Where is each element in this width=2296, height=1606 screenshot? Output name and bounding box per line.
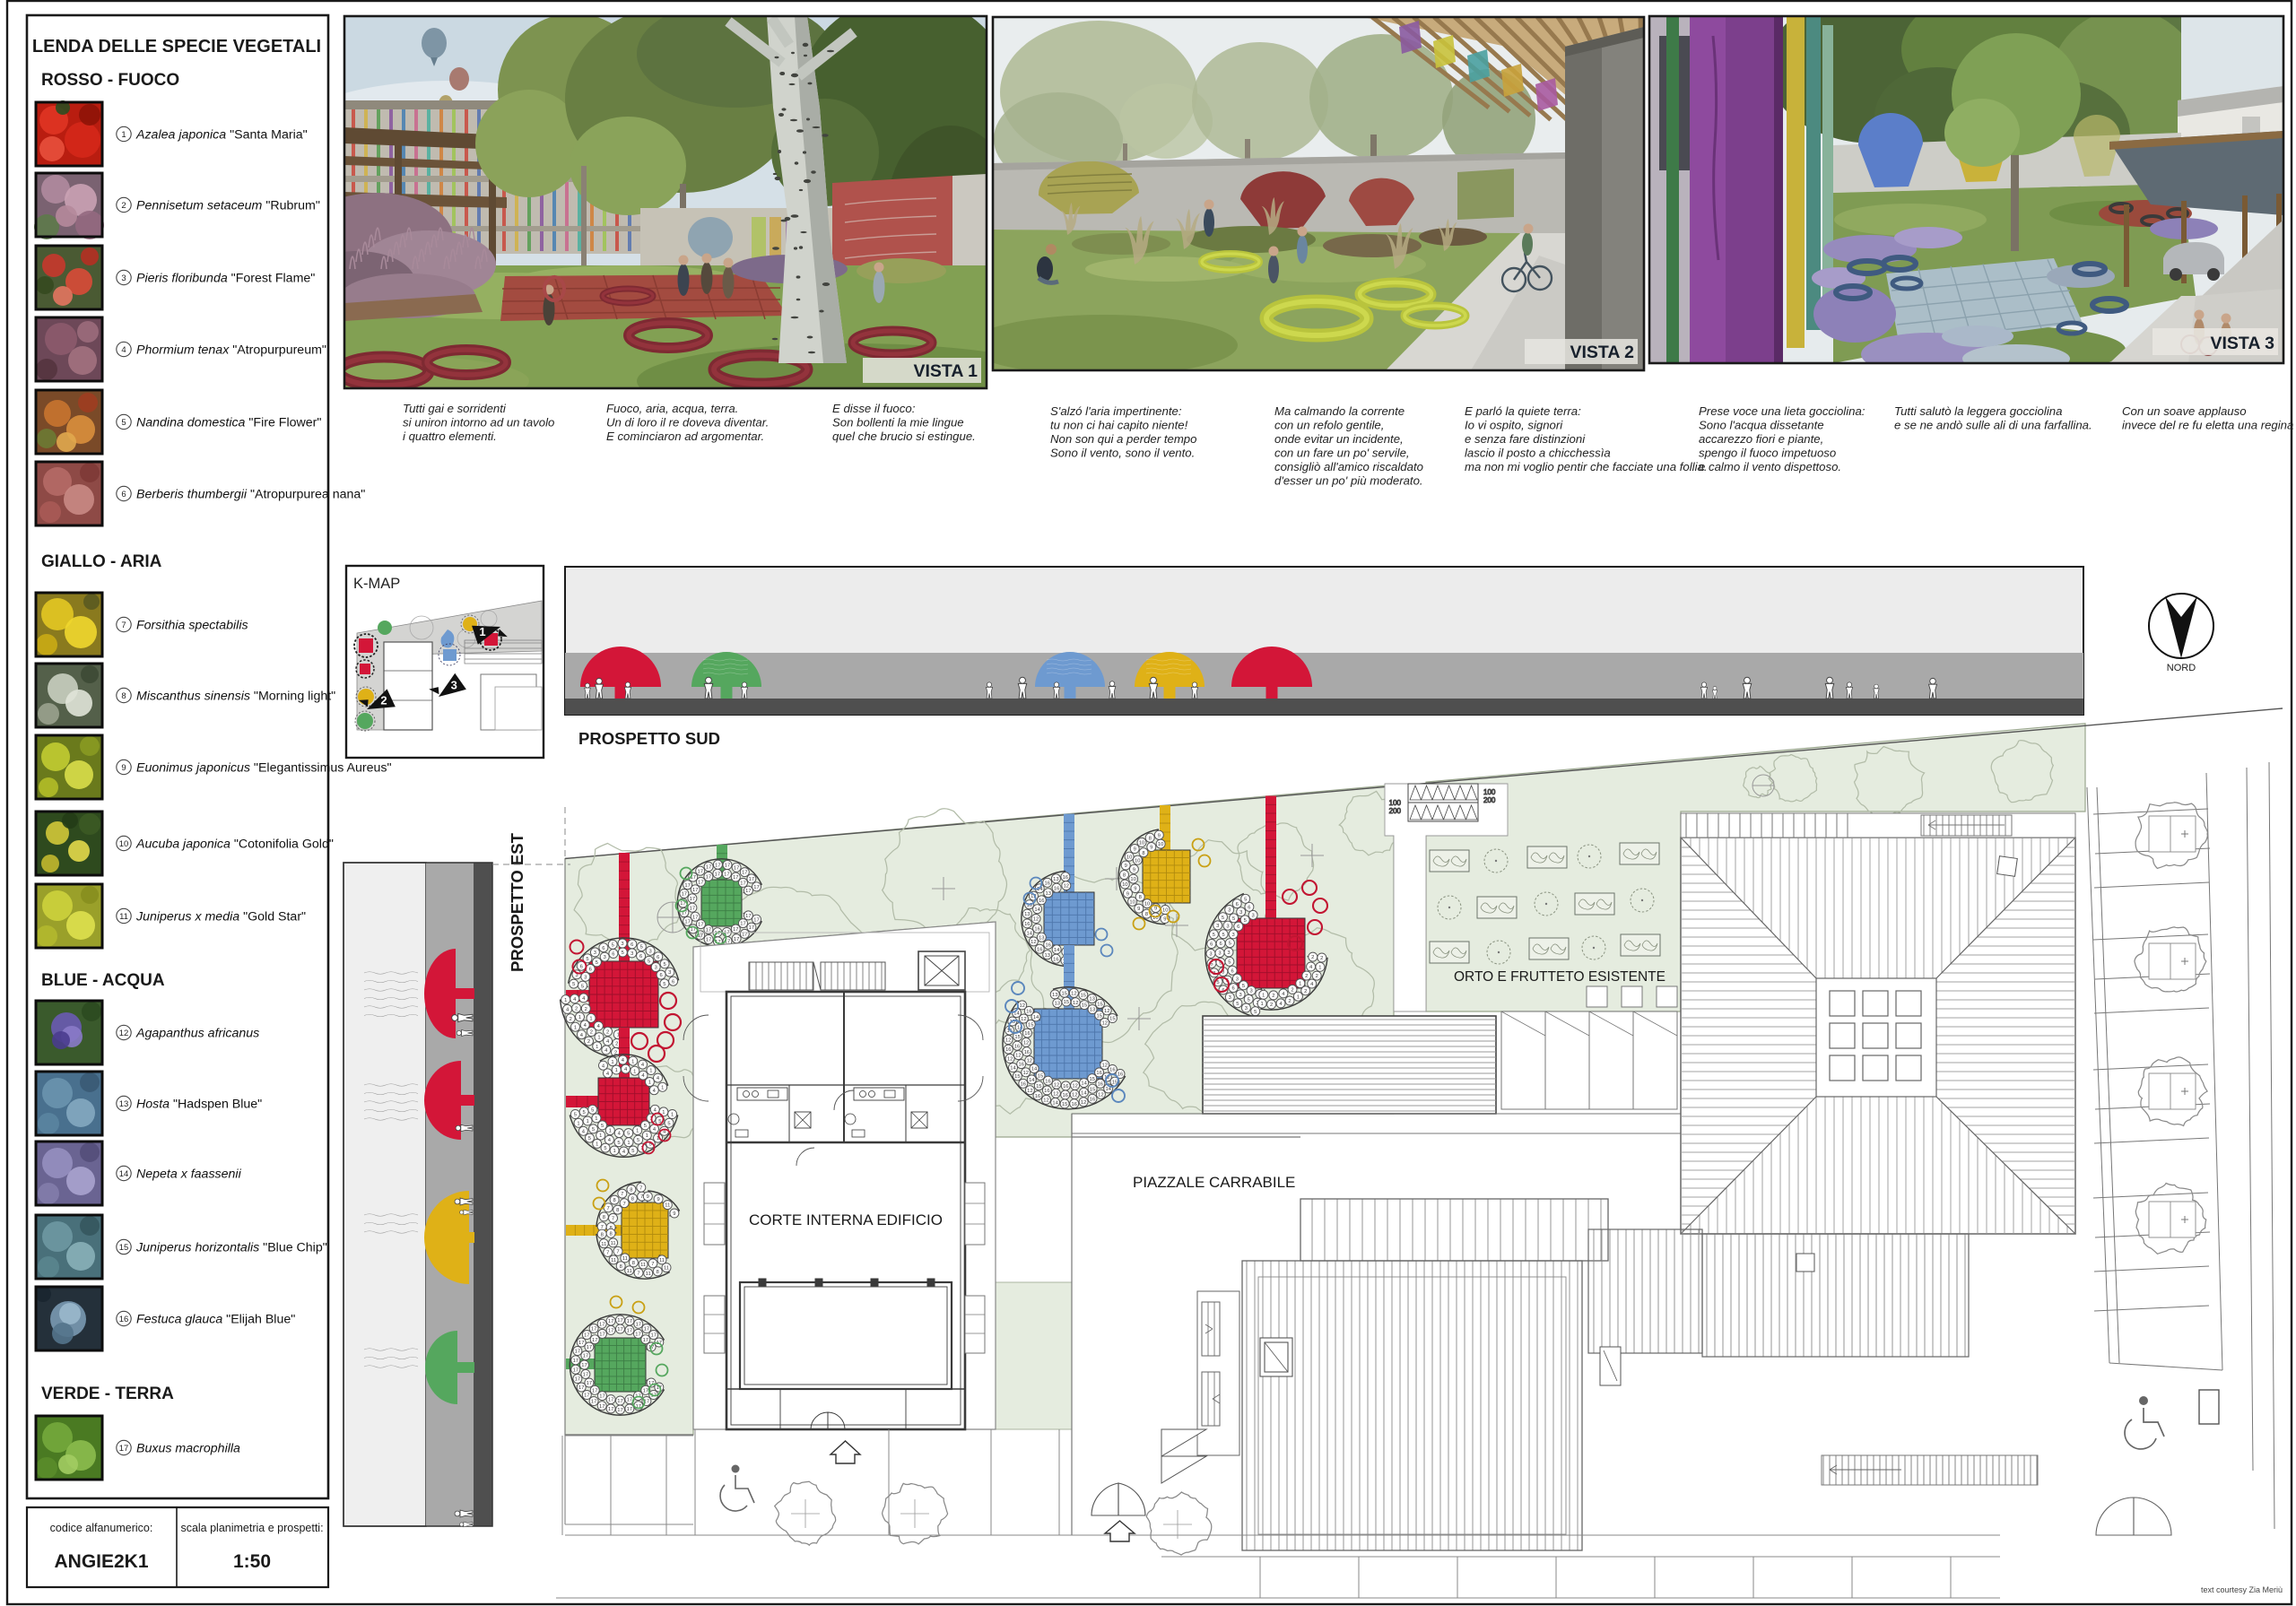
svg-text:5: 5 (1244, 897, 1247, 902)
svg-text:6: 6 (1219, 942, 1222, 947)
svg-text:16: 16 (1021, 1081, 1026, 1087)
svg-text:2: 2 (121, 201, 126, 211)
svg-text:3: 3 (655, 966, 657, 971)
svg-text:17: 17 (650, 1333, 656, 1339)
svg-text:6: 6 (1210, 942, 1213, 948)
svg-text:7: 7 (639, 1185, 642, 1191)
svg-text:200: 200 (1483, 796, 1496, 804)
svg-text:14: 14 (1081, 1081, 1087, 1087)
svg-text:3: 3 (604, 955, 606, 960)
svg-text:16: 16 (1118, 1072, 1123, 1078)
svg-text:6: 6 (1248, 905, 1250, 910)
svg-text:5: 5 (663, 962, 665, 968)
svg-text:16: 16 (1024, 1031, 1030, 1037)
svg-text:13: 13 (1044, 953, 1049, 959)
svg-text:1: 1 (1318, 965, 1321, 970)
svg-text:15: 15 (1064, 1000, 1069, 1005)
svg-text:5: 5 (581, 984, 584, 989)
svg-text:17: 17 (643, 1388, 648, 1393)
svg-text:7: 7 (621, 1192, 623, 1197)
svg-text:2: 2 (606, 1029, 609, 1035)
svg-text:17: 17 (587, 1345, 592, 1350)
svg-text:15: 15 (1090, 1087, 1095, 1092)
svg-text:Berberis thumbergii "Atropurpu: Berberis thumbergii "Atropurpurea nana" (136, 488, 365, 502)
svg-text:3: 3 (1231, 933, 1234, 938)
svg-text:1: 1 (649, 1069, 652, 1074)
svg-text:17: 17 (684, 919, 690, 925)
svg-text:3: 3 (1229, 995, 1231, 1001)
svg-text:Festuca glauca "Elijah Blue": Festuca glauca "Elijah Blue" (136, 1313, 295, 1327)
svg-text:Pennisetum setaceum "Rubrum": Pennisetum setaceum "Rubrum" (136, 199, 320, 213)
svg-text:1: 1 (597, 1036, 600, 1041)
svg-text:3: 3 (594, 951, 596, 956)
svg-text:11: 11 (665, 1203, 670, 1209)
svg-text:3: 3 (621, 942, 623, 947)
svg-text:17: 17 (592, 1388, 597, 1393)
svg-text:15: 15 (1082, 1003, 1087, 1009)
svg-text:17: 17 (692, 888, 698, 893)
svg-text:17: 17 (584, 1393, 589, 1399)
svg-text:17: 17 (617, 1327, 622, 1333)
svg-text:17: 17 (733, 927, 738, 933)
svg-text:17: 17 (706, 875, 711, 881)
svg-text:14: 14 (1031, 1067, 1038, 1072)
svg-text:Ma calmando la correntecon un: Ma calmando la correntecon un refolo gen… (1274, 404, 1423, 488)
svg-text:17: 17 (581, 1363, 587, 1368)
svg-text:8: 8 (620, 1264, 622, 1270)
svg-text:1: 1 (636, 1129, 639, 1134)
svg-text:5: 5 (572, 982, 575, 987)
svg-text:9: 9 (673, 1211, 675, 1217)
svg-text:5: 5 (1228, 959, 1231, 965)
svg-text:9: 9 (1134, 887, 1136, 892)
svg-text:2: 2 (1311, 955, 1314, 960)
svg-text:LENDA DELLE SPECIE VEGETALI: LENDA DELLE SPECIE VEGETALI (32, 37, 321, 56)
svg-text:1: 1 (609, 1129, 612, 1134)
svg-text:1: 1 (611, 1060, 613, 1065)
svg-text:8: 8 (616, 1208, 619, 1213)
svg-text:16: 16 (1039, 898, 1044, 904)
svg-text:1: 1 (613, 1149, 615, 1154)
svg-text:8: 8 (601, 1232, 604, 1237)
svg-text:2: 2 (590, 1030, 593, 1036)
svg-text:3: 3 (1245, 1006, 1248, 1011)
svg-text:17: 17 (617, 1408, 622, 1413)
svg-text:17: 17 (644, 1327, 649, 1333)
svg-text:9: 9 (1150, 846, 1152, 851)
svg-text:17: 17 (715, 863, 720, 868)
svg-text:17: 17 (583, 1373, 588, 1378)
svg-text:VISTA 1: VISTA 1 (913, 361, 978, 381)
svg-text:5: 5 (627, 1132, 630, 1137)
svg-text:17: 17 (627, 1398, 632, 1403)
svg-text:17: 17 (578, 1341, 584, 1346)
svg-text:ROSSO - FUOCO: ROSSO - FUOCO (41, 71, 179, 90)
svg-text:1: 1 (661, 1085, 664, 1090)
svg-text:8: 8 (1145, 912, 1148, 917)
svg-text:17: 17 (697, 869, 702, 874)
svg-text:5: 5 (640, 945, 643, 951)
svg-text:1: 1 (615, 1068, 618, 1073)
svg-text:1: 1 (595, 1116, 597, 1122)
svg-text:200: 200 (1389, 807, 1402, 815)
svg-text:10: 10 (1139, 841, 1144, 846)
svg-text:7: 7 (606, 1206, 609, 1211)
svg-text:12: 12 (1023, 1041, 1029, 1046)
svg-text:scala planimetria e prospetti:: scala planimetria e prospetti: (180, 1522, 323, 1534)
svg-text:VISTA 3: VISTA 3 (2210, 334, 2274, 353)
svg-text:16: 16 (1014, 1044, 1020, 1049)
svg-text:1: 1 (564, 998, 567, 1003)
svg-text:9: 9 (121, 763, 126, 773)
svg-text:12: 12 (1072, 1093, 1077, 1098)
svg-text:VERDE - TERRA: VERDE - TERRA (41, 1385, 174, 1403)
svg-text:ANGIE2K1: ANGIE2K1 (54, 1551, 148, 1572)
svg-text:13: 13 (1039, 935, 1044, 941)
svg-text:11: 11 (611, 1241, 616, 1246)
svg-text:11: 11 (622, 1256, 628, 1262)
svg-text:2: 2 (1288, 999, 1291, 1004)
svg-text:12: 12 (1072, 1084, 1077, 1089)
svg-text:17: 17 (617, 1318, 622, 1324)
svg-text:5: 5 (582, 1110, 585, 1116)
svg-text:5: 5 (667, 1121, 670, 1126)
svg-text:Nandina domestica "Fire Flower: Nandina domestica "Fire Flower" (136, 416, 321, 430)
svg-text:17: 17 (749, 877, 754, 882)
svg-text:Miscanthus sinensis "Morning l: Miscanthus sinensis "Morning light" (136, 690, 335, 704)
svg-text:3: 3 (631, 951, 633, 957)
svg-text:17: 17 (573, 1367, 578, 1373)
svg-text:15: 15 (119, 1243, 129, 1253)
svg-text:17: 17 (599, 1333, 604, 1338)
svg-text:14: 14 (1029, 1078, 1035, 1083)
svg-text:Juniperus x media "Gold Star": Juniperus x media "Gold Star" (135, 910, 306, 925)
svg-text:6: 6 (1237, 925, 1239, 930)
svg-text:3: 3 (1209, 952, 1212, 958)
svg-text:5: 5 (1216, 980, 1219, 985)
svg-text:12: 12 (1053, 1091, 1058, 1097)
svg-text:5: 5 (1232, 916, 1235, 922)
svg-text:17: 17 (617, 1399, 622, 1404)
svg-text:3: 3 (451, 678, 457, 691)
svg-text:17: 17 (643, 1338, 648, 1343)
svg-text:17: 17 (684, 883, 690, 889)
svg-text:9: 9 (1133, 867, 1135, 872)
svg-text:3: 3 (1236, 977, 1239, 982)
svg-text:15: 15 (1081, 994, 1086, 999)
svg-text:3: 3 (668, 970, 671, 976)
svg-text:6: 6 (659, 973, 662, 978)
svg-text:5: 5 (1254, 1010, 1257, 1015)
svg-text:5: 5 (591, 1107, 594, 1113)
svg-text:12: 12 (1098, 1092, 1103, 1098)
svg-text:9: 9 (1154, 907, 1157, 912)
svg-text:Forsithia spectabilis: Forsithia spectabilis (136, 619, 248, 633)
svg-text:16: 16 (1054, 886, 1059, 891)
svg-text:11: 11 (640, 1263, 646, 1268)
svg-text:16: 16 (1044, 881, 1049, 886)
svg-text:13: 13 (119, 1099, 129, 1109)
svg-text:3: 3 (1251, 914, 1254, 919)
svg-text:Hosta "Hadspen Blue": Hosta "Hadspen Blue" (136, 1098, 262, 1112)
svg-text:Agapanthus africanus: Agapanthus africanus (135, 1027, 259, 1041)
svg-text:11: 11 (119, 912, 128, 922)
svg-text:14: 14 (1026, 931, 1032, 936)
svg-text:11: 11 (646, 1272, 651, 1277)
svg-text:16: 16 (1026, 1010, 1031, 1015)
svg-text:Aucuba japonica "Cotonifolia G: Aucuba japonica "Cotonifolia Gold" (135, 838, 334, 852)
svg-text:15: 15 (1036, 1084, 1041, 1089)
svg-text:15: 15 (1109, 1017, 1115, 1022)
svg-text:17: 17 (608, 1407, 613, 1412)
svg-text:Buxus macrophilla: Buxus macrophilla (136, 1442, 240, 1456)
svg-text:ORTO E FRUTTETO ESISTENTE: ORTO E FRUTTETO ESISTENTE (1454, 969, 1665, 985)
svg-text:17: 17 (680, 901, 685, 907)
svg-text:1: 1 (1299, 982, 1301, 987)
svg-text:16: 16 (1035, 1094, 1040, 1099)
svg-text:6: 6 (589, 968, 592, 973)
svg-text:17: 17 (575, 1350, 580, 1355)
svg-text:12: 12 (1007, 1057, 1013, 1063)
svg-text:3: 3 (1228, 908, 1231, 914)
svg-text:14: 14 (1105, 1087, 1111, 1092)
svg-text:12: 12 (1101, 1063, 1107, 1069)
svg-text:9: 9 (647, 1194, 649, 1200)
svg-text:5: 5 (1213, 933, 1215, 938)
svg-text:17: 17 (599, 1404, 604, 1410)
svg-text:VISTA 2: VISTA 2 (1570, 343, 1634, 362)
svg-text:5: 5 (637, 1138, 639, 1143)
svg-text:15: 15 (1014, 1074, 1020, 1080)
svg-text:100: 100 (1389, 799, 1402, 807)
svg-text:1: 1 (1297, 994, 1300, 1000)
svg-text:2: 2 (585, 1007, 587, 1012)
svg-text:14: 14 (1081, 1090, 1087, 1096)
svg-text:12: 12 (1005, 1038, 1011, 1044)
svg-text:12: 12 (1031, 940, 1036, 945)
svg-text:17: 17 (584, 1333, 589, 1339)
svg-text:17: 17 (627, 1407, 632, 1412)
svg-text:2: 2 (1316, 974, 1318, 979)
svg-text:3: 3 (1249, 989, 1252, 994)
svg-text:14: 14 (1054, 948, 1060, 953)
svg-text:5: 5 (586, 957, 588, 962)
svg-text:17: 17 (692, 915, 698, 920)
svg-text:S'alzó l'aria impertinente:tu: S'alzó l'aria impertinente:tu non ci hai… (1050, 404, 1196, 460)
svg-text:1: 1 (586, 1119, 588, 1124)
svg-text:8: 8 (630, 1188, 632, 1194)
svg-text:17: 17 (698, 923, 703, 928)
svg-text:16: 16 (1044, 1089, 1049, 1094)
svg-text:2: 2 (587, 1039, 590, 1045)
svg-text:7: 7 (121, 621, 126, 630)
svg-text:GIALLO - ARIA: GIALLO - ARIA (41, 552, 162, 571)
svg-text:17: 17 (749, 925, 754, 931)
svg-text:3: 3 (584, 975, 587, 980)
svg-text:16: 16 (1090, 1097, 1095, 1102)
svg-text:5: 5 (1236, 1002, 1239, 1007)
svg-text:4: 4 (121, 345, 126, 355)
svg-text:13: 13 (1045, 891, 1050, 897)
svg-text:16: 16 (1045, 1079, 1050, 1084)
svg-text:2: 2 (1305, 974, 1308, 979)
svg-text:3: 3 (121, 273, 126, 283)
svg-text:15: 15 (1014, 1035, 1020, 1040)
svg-text:PROSPETTO EST: PROSPETTO EST (508, 832, 526, 972)
svg-text:Euonimus japonicus "Elegantiss: Euonimus japonicus "Elegantissimus Aureu… (136, 761, 392, 776)
svg-text:5: 5 (592, 1127, 595, 1133)
svg-text:12: 12 (1064, 884, 1069, 890)
svg-text:12: 12 (1073, 1001, 1078, 1006)
svg-text:8: 8 (1142, 851, 1144, 856)
svg-text:12: 12 (1022, 1071, 1028, 1076)
svg-text:Juniperus horizontalis "Blue C: Juniperus horizontalis "Blue Chip" (135, 1241, 327, 1255)
svg-text:3: 3 (648, 949, 651, 954)
svg-text:17: 17 (591, 1400, 596, 1405)
svg-text:15: 15 (1028, 1023, 1033, 1029)
svg-text:2: 2 (1272, 994, 1274, 999)
svg-text:1: 1 (596, 1142, 598, 1148)
svg-text:13: 13 (1053, 877, 1058, 882)
svg-text:6: 6 (1231, 986, 1234, 992)
svg-text:1:50: 1:50 (233, 1551, 271, 1572)
svg-text:12: 12 (119, 1029, 129, 1038)
svg-text:17: 17 (734, 865, 739, 871)
svg-text:2: 2 (615, 1042, 618, 1047)
svg-text:codice alfanumerico:: codice alfanumerico: (50, 1522, 153, 1534)
svg-text:12: 12 (1104, 1009, 1109, 1014)
svg-text:8: 8 (609, 1231, 612, 1237)
svg-text:12: 12 (1081, 1100, 1086, 1106)
svg-text:6: 6 (657, 955, 659, 960)
svg-text:K-MAP: K-MAP (353, 576, 400, 592)
svg-text:16: 16 (1096, 1071, 1101, 1076)
svg-text:16: 16 (1053, 957, 1058, 962)
svg-text:5: 5 (588, 1136, 591, 1142)
svg-text:17: 17 (742, 871, 747, 876)
svg-text:Nepeta x faassenii: Nepeta x faassenii (136, 1168, 242, 1182)
svg-text:17: 17 (583, 1354, 588, 1359)
svg-text:1: 1 (589, 1016, 592, 1021)
svg-text:16: 16 (1109, 1068, 1115, 1073)
svg-text:Pieris floribunda "Forest Flam: Pieris floribunda "Forest Flame" (136, 272, 315, 286)
svg-text:text courtesy Zia Meriù: text courtesy Zia Meriù (2201, 1585, 2283, 1594)
svg-text:1: 1 (1262, 993, 1265, 998)
svg-text:1: 1 (671, 1113, 674, 1118)
svg-text:2: 2 (1291, 988, 1293, 994)
svg-text:7: 7 (651, 1262, 654, 1267)
svg-text:17: 17 (599, 1322, 604, 1327)
svg-text:12: 12 (1101, 1021, 1107, 1027)
svg-text:17: 17 (740, 922, 745, 927)
svg-text:3: 3 (1227, 951, 1230, 956)
svg-text:5: 5 (1222, 916, 1224, 921)
svg-text:7: 7 (616, 1249, 619, 1254)
svg-text:5: 5 (1242, 984, 1245, 989)
svg-text:17: 17 (575, 1377, 580, 1383)
svg-text:17: 17 (627, 1329, 632, 1334)
svg-text:17: 17 (599, 1394, 604, 1400)
svg-text:14: 14 (1052, 1101, 1058, 1107)
svg-text:17: 17 (635, 1333, 640, 1338)
svg-text:11: 11 (611, 1258, 616, 1263)
svg-text:8: 8 (1123, 873, 1126, 879)
svg-text:5: 5 (612, 942, 614, 948)
svg-text:3: 3 (1218, 951, 1221, 957)
svg-text:6: 6 (612, 952, 614, 958)
svg-text:17: 17 (591, 1327, 596, 1333)
svg-text:16: 16 (1063, 1084, 1068, 1089)
svg-text:BLUE - ACQUA: BLUE - ACQUA (41, 971, 165, 990)
svg-text:9: 9 (1134, 847, 1136, 853)
svg-text:6: 6 (121, 490, 126, 499)
svg-text:3: 3 (1216, 924, 1219, 929)
svg-text:7: 7 (622, 1202, 625, 1207)
svg-text:17: 17 (578, 1385, 584, 1391)
svg-text:16: 16 (1024, 922, 1030, 927)
svg-text:9: 9 (1137, 907, 1140, 912)
svg-text:PROSPETTO SUD: PROSPETTO SUD (578, 729, 720, 748)
svg-text:16: 16 (119, 1315, 129, 1324)
svg-text:17: 17 (745, 914, 751, 919)
svg-text:5: 5 (121, 418, 126, 428)
svg-text:17: 17 (725, 864, 730, 869)
svg-text:2: 2 (570, 1017, 572, 1022)
svg-text:16: 16 (1045, 942, 1050, 948)
svg-text:5: 5 (604, 1146, 606, 1151)
svg-text:17: 17 (608, 1319, 613, 1324)
svg-text:5: 5 (663, 982, 665, 987)
svg-text:7: 7 (637, 1272, 639, 1277)
svg-text:14: 14 (1033, 1015, 1039, 1020)
svg-text:15: 15 (1061, 991, 1066, 996)
svg-text:10: 10 (1129, 899, 1135, 905)
svg-text:1: 1 (662, 1110, 665, 1116)
svg-text:14: 14 (119, 1169, 129, 1179)
svg-text:3: 3 (1226, 924, 1229, 929)
svg-text:1: 1 (648, 1081, 651, 1086)
svg-text:17: 17 (715, 872, 720, 877)
svg-text:Phormium tenax "Atropurpureum": Phormium tenax "Atropurpureum" (136, 343, 326, 358)
svg-text:9: 9 (1163, 917, 1166, 923)
svg-text:1: 1 (596, 1045, 598, 1050)
svg-text:17: 17 (592, 1338, 597, 1343)
svg-text:10: 10 (119, 839, 129, 849)
svg-text:12: 12 (1071, 992, 1076, 997)
svg-text:8: 8 (121, 691, 126, 701)
svg-text:8: 8 (631, 1197, 634, 1202)
svg-text:17: 17 (734, 937, 739, 942)
svg-text:13: 13 (1024, 912, 1030, 917)
svg-text:1: 1 (1260, 1002, 1263, 1007)
svg-text:17: 17 (724, 872, 729, 878)
svg-text:3: 3 (1239, 910, 1242, 916)
svg-text:17: 17 (740, 881, 745, 887)
svg-text:17: 17 (745, 889, 751, 894)
svg-text:12: 12 (1054, 1082, 1059, 1088)
svg-text:15: 15 (1097, 1003, 1102, 1008)
svg-text:NORD: NORD (2167, 663, 2196, 673)
svg-text:10: 10 (1122, 882, 1127, 888)
svg-text:17: 17 (608, 1398, 613, 1403)
svg-text:12: 12 (1027, 1059, 1032, 1064)
svg-text:2: 2 (575, 1006, 578, 1011)
svg-text:3: 3 (1239, 993, 1241, 998)
svg-text:16: 16 (1034, 926, 1039, 932)
svg-text:16: 16 (1024, 1050, 1030, 1055)
svg-text:7: 7 (606, 1251, 609, 1256)
svg-text:17: 17 (698, 881, 703, 886)
